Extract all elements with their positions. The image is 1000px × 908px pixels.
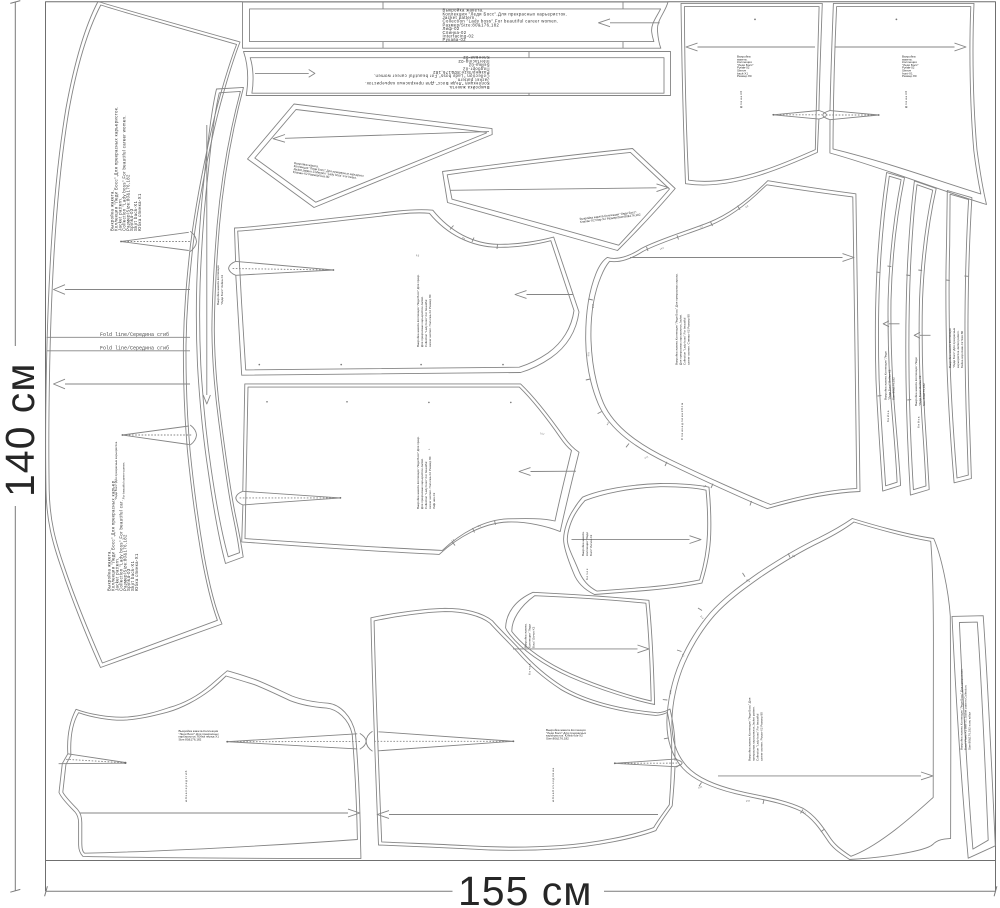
- svg-text:Size:80&176,182: Size:80&176,182: [892, 377, 896, 400]
- svg-text:б о ч о к: б о ч о к: [585, 568, 589, 580]
- svg-text:Лиф низ-Х2: Лиф низ-Х2: [432, 492, 436, 509]
- svg-text:.For beautiful career women.: .For beautiful career women.: [122, 462, 126, 500]
- svg-text:Size:80&176,182 пояс юбки: Size:80&176,182 пояс юбки: [968, 712, 972, 750]
- svg-text:Fold line/Середина сгиб: Fold line/Середина сгиб: [100, 332, 169, 338]
- svg-text:Размер 80: Размер 80: [737, 74, 752, 78]
- svg-text:С п и н к а д л и н а 3 0 с: С п и н к а д л и н а 3 0 с м: [680, 403, 684, 440]
- svg-text:Юбка спинка-Х1: Юбка спинка-Х1: [137, 193, 142, 231]
- svg-text:б о ч о к: б о ч о к: [528, 663, 532, 675]
- svg-text:ю б к а п е р е д с г и б: ю б к а п е р е д с г и б: [184, 770, 188, 802]
- svg-text:Юбка спинка-Х1: Юбка спинка-Х1: [134, 553, 139, 591]
- svg-text:140 см: 140 см: [0, 363, 43, 498]
- svg-text:Size:80&176,182: Size:80&176,182: [179, 737, 202, 741]
- svg-text:Size:80&176,182: Size:80&176,182: [546, 736, 569, 740]
- svg-text:б е й к а: б е й к а: [917, 416, 921, 428]
- svg-text:career women. Полочка-Х2 Разме: career women. Полочка-Х2 Размер 80: [428, 294, 432, 347]
- svg-text:Клеевая-02: Клеевая-02: [463, 55, 490, 60]
- svg-text:Бейка воротник-Х2 Size:80: Бейка воротник-Х2 Size:80: [960, 330, 964, 368]
- svg-text:"Леди Босс" бейка-Х2: "Леди Босс" бейка-Х2: [220, 274, 224, 305]
- svg-text:Д л и н а 3 0: Д л и н а 3 0: [739, 91, 743, 108]
- svg-text:Fold line/Середина сгиб: Fold line/Середина сгиб: [100, 345, 169, 351]
- svg-text:Рукава-02: Рукава-02: [443, 37, 467, 42]
- svg-text:б е й к а: б е й к а: [886, 410, 890, 422]
- svg-text:career women. Рукав-Х2 Размер: career women. Рукав-Х2 Размер 80: [760, 712, 764, 761]
- svg-text:Размер 80: Размер 80: [902, 74, 917, 78]
- svg-text:Босс".Бочок-Х2: Босс".Бочок-Х2: [532, 626, 536, 648]
- svg-text:Д л и н а 3 0: Д л и н а 3 0: [904, 91, 908, 108]
- svg-text:ю б к а б о ч о к д л и н а: ю б к а б о ч о к д л и н а: [551, 767, 555, 802]
- svg-text:Size:80&176,182: Size:80&176,182: [922, 383, 926, 406]
- svg-text:Босс".Бочок-Х2: Босс".Бочок-Х2: [589, 534, 593, 556]
- svg-text:career women. Спинка-Х2 Размер: career women. Спинка-Х2 Размер 80: [687, 314, 691, 365]
- svg-text:155 см: 155 см: [458, 868, 593, 908]
